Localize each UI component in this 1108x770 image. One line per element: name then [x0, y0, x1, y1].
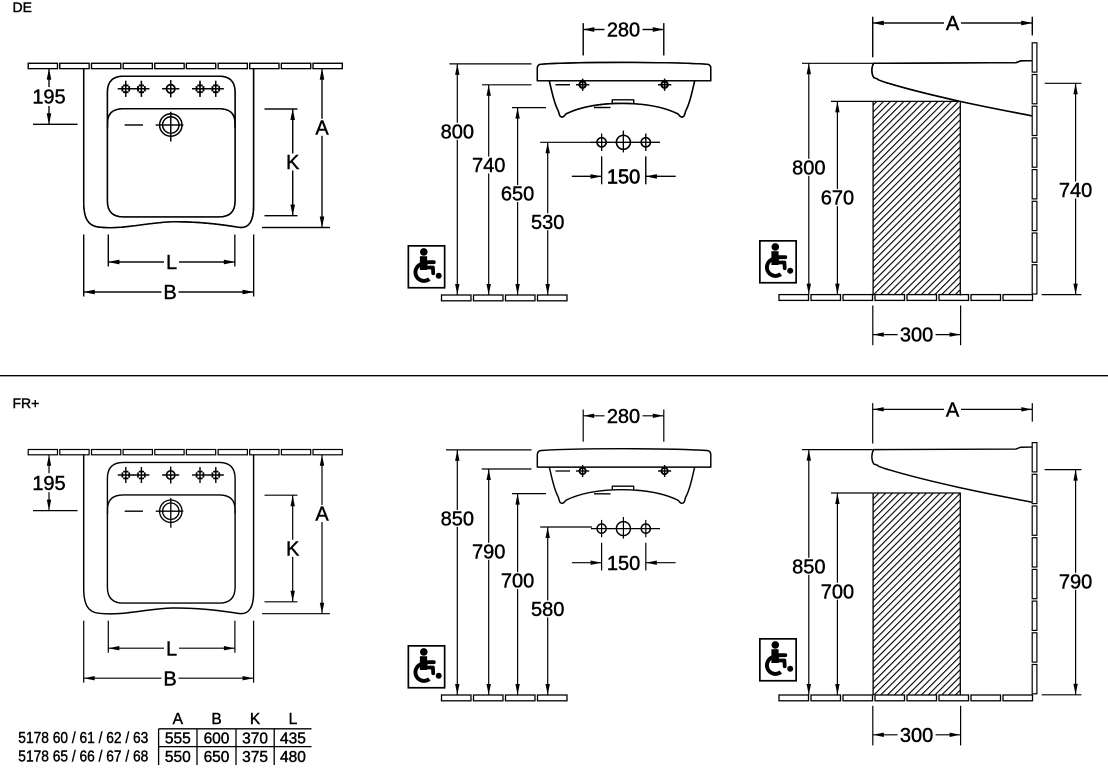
svg-text:550: 550: [165, 749, 191, 765]
svg-text:530: 530: [531, 212, 564, 234]
svg-text:800: 800: [792, 157, 825, 179]
svg-text:740: 740: [1059, 180, 1092, 202]
svg-text:A: A: [173, 711, 184, 728]
svg-text:370: 370: [242, 730, 268, 747]
svg-text:480: 480: [280, 749, 306, 765]
svg-text:FR+: FR+: [13, 395, 40, 411]
svg-text:5178 60 / 61 / 62 / 63: 5178 60 / 61 / 62 / 63: [18, 730, 148, 747]
svg-text:850: 850: [441, 509, 474, 531]
svg-text:670: 670: [821, 188, 854, 210]
svg-text:580: 580: [531, 599, 564, 621]
svg-text:B: B: [211, 711, 221, 728]
svg-text:L: L: [289, 711, 298, 728]
svg-text:700: 700: [501, 571, 534, 593]
svg-text:435: 435: [280, 730, 306, 747]
svg-text:800: 800: [441, 121, 474, 143]
svg-text:850: 850: [792, 556, 825, 578]
svg-text:790: 790: [472, 541, 505, 563]
svg-text:790: 790: [1059, 571, 1092, 593]
svg-text:600: 600: [204, 730, 230, 747]
svg-text:375: 375: [242, 749, 268, 765]
svg-text:555: 555: [165, 730, 191, 747]
svg-text:300: 300: [900, 325, 933, 347]
svg-text:5178 65 / 66 / 67 / 68: 5178 65 / 66 / 67 / 68: [18, 749, 148, 765]
svg-text:700: 700: [821, 581, 854, 603]
svg-text:650: 650: [204, 749, 230, 765]
svg-text:740: 740: [472, 155, 505, 177]
svg-text:300: 300: [900, 725, 933, 747]
svg-text:650: 650: [501, 184, 534, 206]
svg-text:DE: DE: [13, 0, 32, 15]
svg-text:K: K: [250, 711, 261, 728]
